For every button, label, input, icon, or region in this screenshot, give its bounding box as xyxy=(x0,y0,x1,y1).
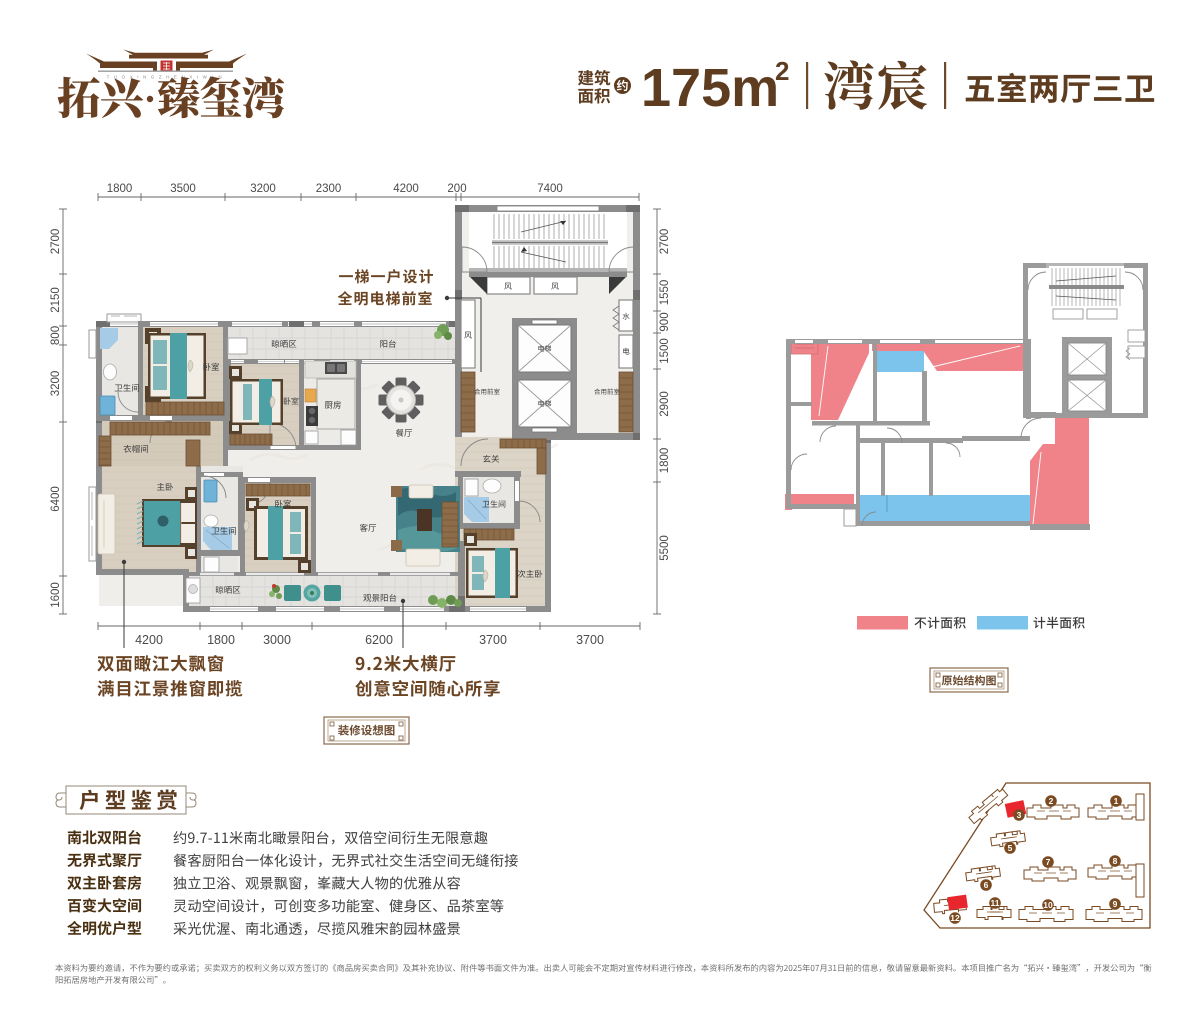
svg-text:2: 2 xyxy=(775,56,789,86)
svg-text:6200: 6200 xyxy=(365,633,393,647)
svg-text:1550: 1550 xyxy=(659,280,671,306)
svg-text:1: 1 xyxy=(1114,796,1119,806)
svg-text:6: 6 xyxy=(984,880,989,890)
svg-text:800: 800 xyxy=(50,326,62,345)
svg-text:2: 2 xyxy=(1049,796,1054,806)
svg-text:2700: 2700 xyxy=(659,229,671,255)
svg-text:2700: 2700 xyxy=(50,229,62,255)
svg-text:5500: 5500 xyxy=(659,535,671,561)
svg-text:2900: 2900 xyxy=(659,391,671,417)
svg-text:6400: 6400 xyxy=(50,486,62,512)
svg-text:11: 11 xyxy=(991,898,1000,908)
svg-text:1600: 1600 xyxy=(50,582,62,608)
svg-text:1500: 1500 xyxy=(659,338,671,364)
svg-text:1800: 1800 xyxy=(659,448,671,474)
svg-text:4200: 4200 xyxy=(393,183,419,195)
svg-text:3200: 3200 xyxy=(50,371,62,397)
svg-text:8: 8 xyxy=(1113,856,1118,866)
svg-text:5: 5 xyxy=(1008,843,1013,853)
svg-text:3700: 3700 xyxy=(479,633,507,647)
svg-text:1800: 1800 xyxy=(107,183,133,195)
svg-text:3: 3 xyxy=(1017,810,1022,820)
svg-text:12: 12 xyxy=(950,913,960,923)
svg-text:175m: 175m xyxy=(641,58,779,118)
svg-text:10: 10 xyxy=(1043,900,1053,910)
svg-text:900: 900 xyxy=(659,312,671,331)
svg-text:T U O X I N G Z H E N X I W A: T U O X I N G Z H E N X I W A N xyxy=(107,75,224,80)
svg-text:4200: 4200 xyxy=(135,633,163,647)
svg-text:3700: 3700 xyxy=(576,633,604,647)
svg-text:2150: 2150 xyxy=(50,287,62,313)
svg-text:1800: 1800 xyxy=(207,633,235,647)
svg-text:7400: 7400 xyxy=(537,183,563,195)
svg-text:3500: 3500 xyxy=(170,183,196,195)
svg-text:2300: 2300 xyxy=(316,183,342,195)
svg-text:3200: 3200 xyxy=(250,183,276,195)
svg-text:9: 9 xyxy=(1113,899,1118,909)
svg-text:3000: 3000 xyxy=(263,633,291,647)
svg-text:200: 200 xyxy=(447,183,466,195)
svg-text:7: 7 xyxy=(1046,857,1051,867)
